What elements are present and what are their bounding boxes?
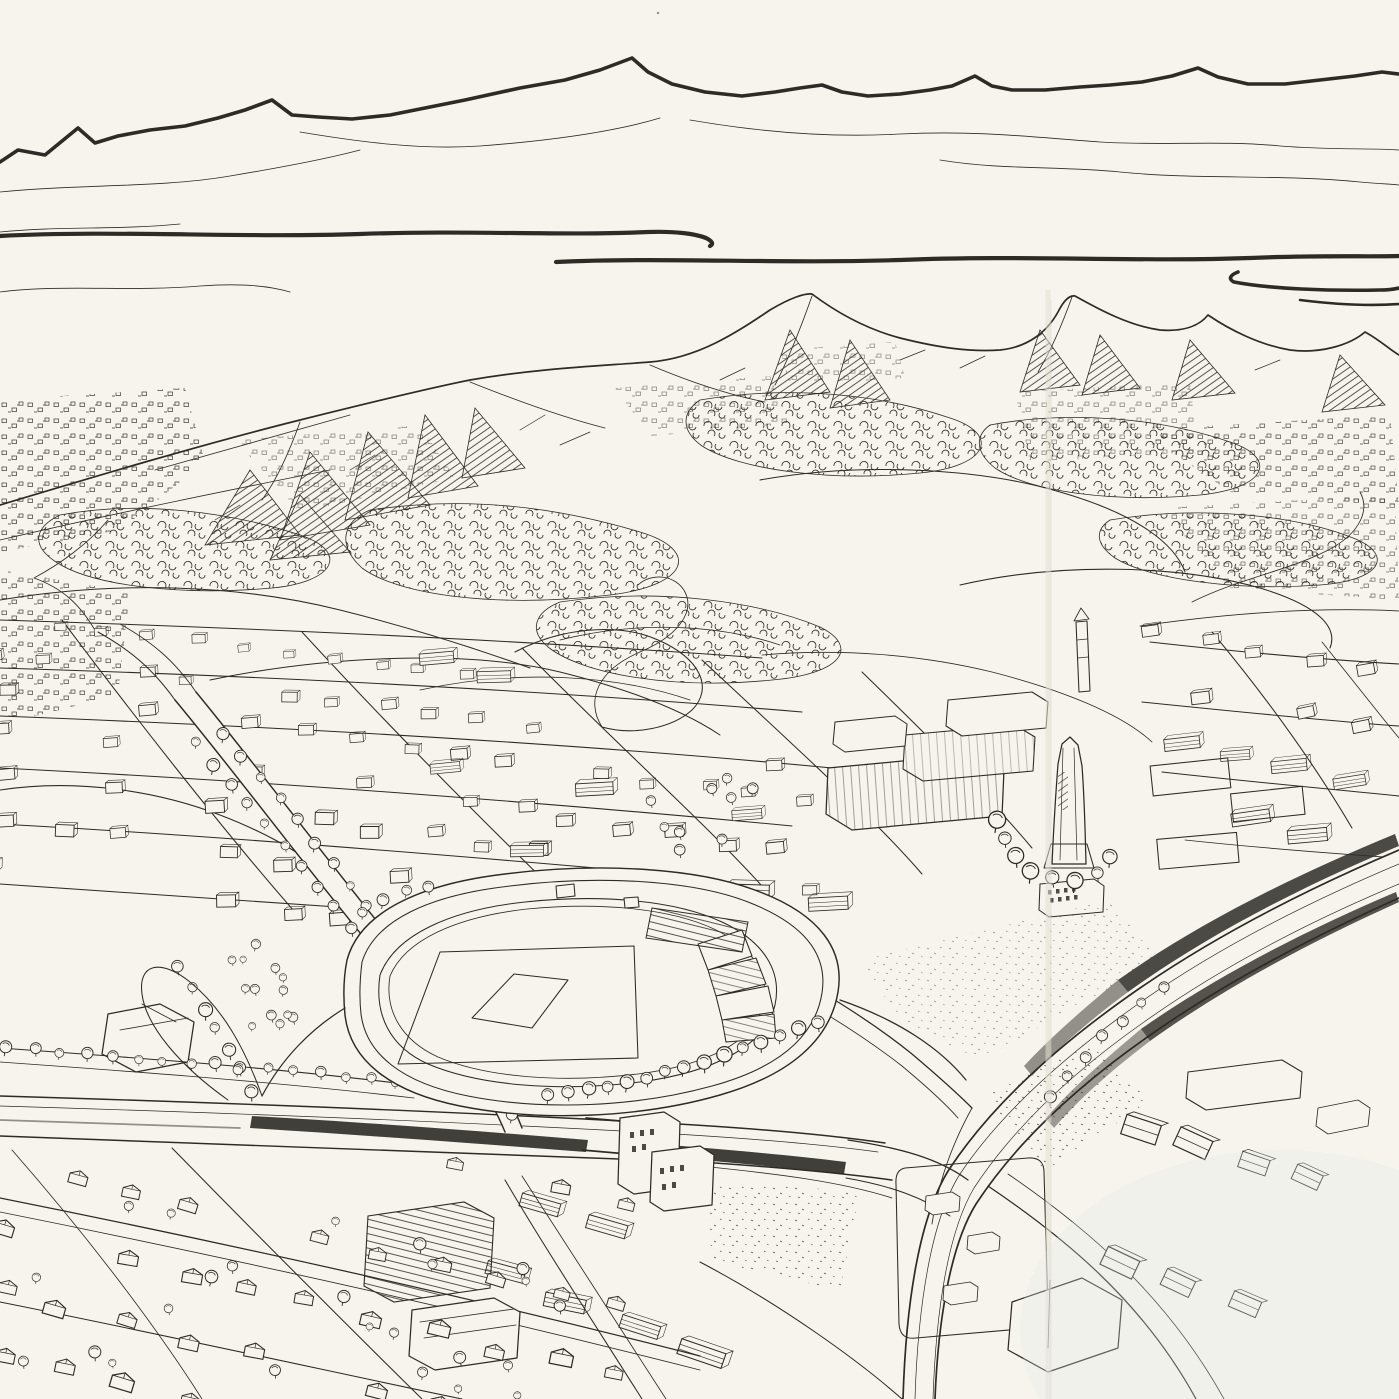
yard-shed xyxy=(967,1232,1000,1254)
scanned-drawing-page: Hand-drawn bird's-eye view: distant moun… xyxy=(0,0,1399,1399)
bldg-s-instance xyxy=(421,707,438,718)
aerial-sketch xyxy=(0,0,1399,1399)
yard-shed xyxy=(943,1282,978,1305)
paper-speck xyxy=(657,12,659,14)
hillside-houses xyxy=(1015,382,1198,462)
stadium-outbuilding xyxy=(624,897,639,908)
bldg-s-instance xyxy=(360,824,382,838)
tree-instance xyxy=(513,1391,521,1399)
stadium-outbuilding xyxy=(556,884,575,898)
campus-hall xyxy=(833,716,907,752)
yard-shed xyxy=(925,1192,960,1215)
campus-hall xyxy=(946,692,1048,736)
